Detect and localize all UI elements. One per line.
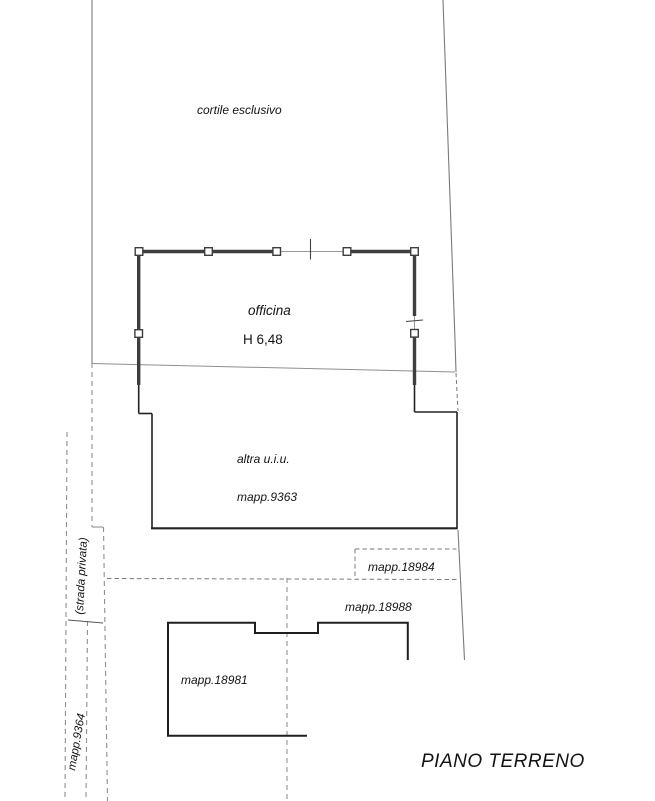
workshop-height-label: H 6,48 xyxy=(243,332,283,347)
other-unit-label: altra u.i.u. mapp.9363 xyxy=(237,428,297,528)
right-property-boundary xyxy=(443,0,465,660)
left-property-boundary xyxy=(92,0,108,801)
plan-linework xyxy=(0,0,655,801)
courtyard-label: cortile esclusivo xyxy=(197,103,282,117)
other-unit-label-line1: altra u.i.u. xyxy=(237,453,297,466)
floor-plan-drawing: cortile esclusivo officina H 6,48 altra … xyxy=(0,0,655,801)
parcel-dashed-lines xyxy=(107,549,457,801)
wall-pillars xyxy=(135,248,418,338)
other-unit-label-line2: mapp.9363 xyxy=(237,491,297,504)
parcel-18984-label: mapp.18984 xyxy=(368,560,435,574)
courtyard-lower-boundary xyxy=(92,364,455,373)
workshop-walls xyxy=(139,252,415,386)
other-unit-outline xyxy=(139,385,458,529)
plan-title: PIANO TERRENO xyxy=(421,751,585,773)
parcel-18981-label: mapp.18981 xyxy=(181,673,248,687)
workshop-label: officina xyxy=(248,303,291,318)
parcel-18988-label: mapp.18988 xyxy=(345,600,412,614)
